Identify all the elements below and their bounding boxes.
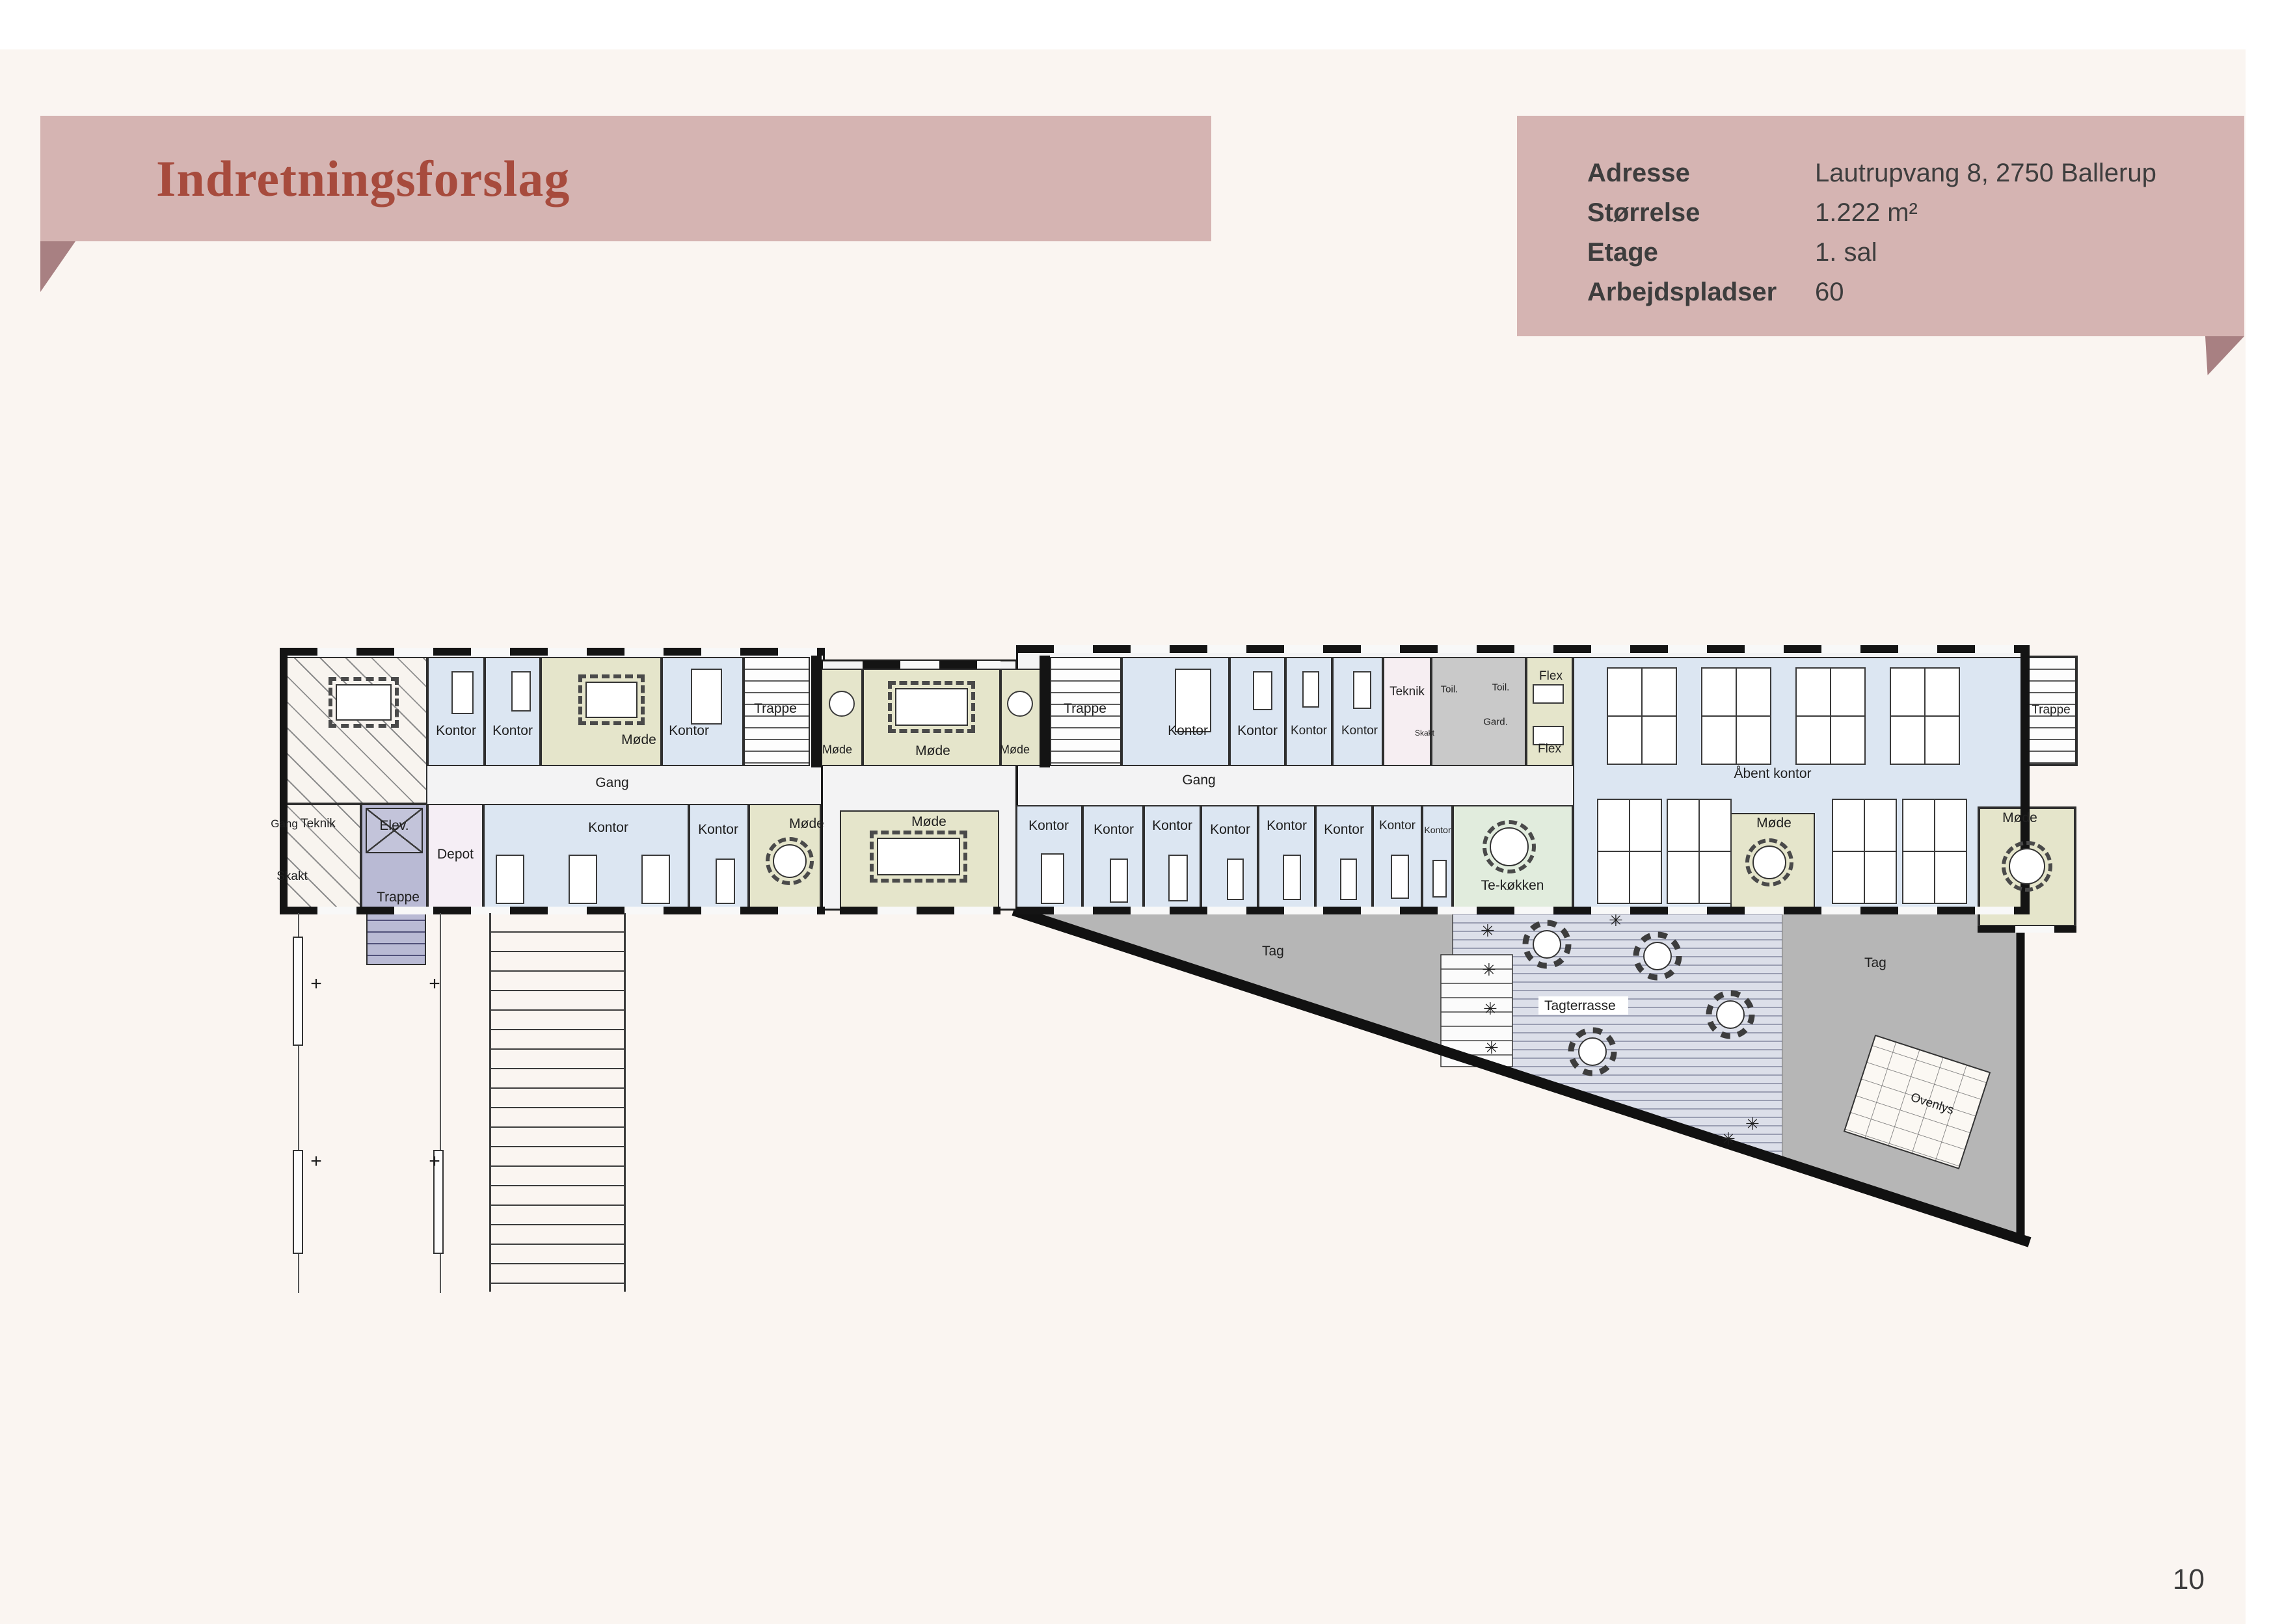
furniture-cluster <box>1597 799 1662 904</box>
furniture-desk <box>1168 855 1188 901</box>
window-wall <box>863 661 1000 669</box>
furniture-desk <box>1391 855 1409 899</box>
room-label: Kontor <box>492 723 533 739</box>
window-wall <box>1016 907 2026 914</box>
furniture-desk <box>1110 859 1128 903</box>
window-wall <box>840 907 1000 914</box>
furniture-rtable <box>773 844 807 878</box>
room-label: Gard. <box>1483 717 1508 728</box>
furniture-desk <box>496 855 524 904</box>
furniture-rchair <box>829 691 855 717</box>
furniture-desk <box>1432 860 1447 898</box>
svg-text:✳: ✳ <box>1481 921 1495 940</box>
room-label: Kontor <box>1210 822 1250 838</box>
room-label: Kontor <box>1424 825 1451 835</box>
room-label: Toil. <box>1441 684 1458 695</box>
room-label: Møde <box>789 816 824 832</box>
furniture-rtable <box>2009 848 2045 885</box>
room-label: Trappe <box>2032 703 2071 717</box>
room-label: Kontor <box>669 723 709 739</box>
furniture-desk <box>1302 671 1319 708</box>
room-label: Depot <box>437 847 474 862</box>
furniture-desk <box>1041 853 1064 904</box>
furniture-desk <box>1340 859 1357 900</box>
room-label: Kontor <box>1291 724 1327 738</box>
furniture-cluster <box>1701 667 1771 765</box>
furniture-rtable <box>1490 827 1529 866</box>
furniture-table <box>877 838 960 875</box>
furniture-cluster <box>1667 799 1732 904</box>
room-trappe <box>366 908 426 965</box>
furniture-desk <box>569 855 597 904</box>
furniture-cluster <box>1607 667 1677 765</box>
window-wall <box>1978 926 2076 933</box>
room-label: Toil. <box>1492 682 1510 693</box>
room-label: Elev. <box>379 818 409 834</box>
furniture-desk <box>1283 855 1301 900</box>
room-label: + <box>310 1151 322 1173</box>
room-label: Kontor <box>1094 822 1134 838</box>
furniture-rtable <box>1752 845 1786 879</box>
roof-label-left: Tag <box>1262 944 1284 959</box>
furniture-cluster <box>1902 799 1967 904</box>
furniture-capsule <box>293 1150 303 1254</box>
room-label: Trappe <box>377 890 420 905</box>
room-existing-area <box>284 657 427 804</box>
svg-text:✳: ✳ <box>1721 1129 1736 1149</box>
room-label: Skakt <box>1415 728 1434 738</box>
room-label: Kontor <box>1168 723 1208 739</box>
furniture-desk <box>1253 671 1272 710</box>
furniture-desk <box>1227 859 1244 900</box>
room-label: Te-køkken <box>1481 878 1544 894</box>
room-label: Møde <box>911 814 946 830</box>
room-label: Gang <box>595 775 628 791</box>
room-label: Kontor <box>1237 723 1278 739</box>
room-label: Møde <box>1000 743 1030 757</box>
furniture-desk <box>691 669 722 725</box>
solid-wall <box>811 656 822 767</box>
furniture-desk <box>641 855 670 904</box>
terrace-label: Tagterrasse <box>1544 998 1616 1013</box>
furniture-rchair <box>1007 691 1033 717</box>
room-label: + <box>310 973 322 995</box>
room-label: Teknik <box>1389 685 1425 699</box>
room-label: Trappe <box>754 701 797 717</box>
furniture-table <box>895 688 968 726</box>
room-label: Flex <box>1539 669 1563 684</box>
room-label: Kontor <box>436 723 476 739</box>
room-label: Skakt <box>276 870 308 884</box>
room-label: Møde <box>822 743 852 757</box>
furniture-desk <box>1353 671 1371 709</box>
roof-terrace-drawing: ✳ ✳ ✳ ✳ ✳ ✳ ✳ Tag Tagterrasse Tag Ovenly… <box>1007 905 2087 1260</box>
furniture-table <box>585 682 638 718</box>
furniture-table <box>336 684 392 721</box>
roof-label-right: Tag <box>1864 955 1886 970</box>
room-label: Kontor <box>1028 818 1069 834</box>
room-label: + <box>429 973 440 995</box>
room-label: + <box>429 1151 440 1173</box>
furniture-cluster <box>1795 667 1866 765</box>
svg-text:✳: ✳ <box>1483 999 1497 1018</box>
room-toiletter <box>1431 657 1526 766</box>
room-label: Gang <box>271 818 298 831</box>
room-label: Teknik <box>301 817 336 831</box>
room-label: Trappe <box>1064 701 1107 717</box>
furniture-capsule <box>293 937 303 1046</box>
svg-text:✳: ✳ <box>1484 1038 1499 1058</box>
room-label: Kontor <box>698 822 738 838</box>
room-label: Kontor <box>1267 818 1307 834</box>
furniture-desk <box>451 671 474 714</box>
room-label: Møde <box>2002 810 2037 826</box>
room-label: Kontor <box>1379 819 1416 833</box>
room-label: Kontor <box>588 820 628 836</box>
window-wall <box>1016 645 2028 653</box>
svg-text:✳: ✳ <box>1745 1114 1760 1134</box>
svg-text:✳: ✳ <box>1482 960 1496 979</box>
furniture-cluster <box>1890 667 1960 765</box>
room-label: Kontor <box>1324 822 1364 838</box>
room-label: Møde <box>1756 816 1792 831</box>
room-label: Kontor <box>1341 724 1378 738</box>
room-label: Møde <box>915 743 950 759</box>
furniture-ladder <box>489 913 626 1292</box>
room-label: Åbent kontor <box>1734 766 1811 782</box>
room-teknik <box>1383 657 1431 766</box>
room-label: Flex <box>1538 742 1561 756</box>
furniture-cluster <box>1832 799 1897 904</box>
room-label: Gang <box>1182 773 1215 788</box>
furniture-desk <box>716 859 735 904</box>
room-label: Kontor <box>1152 818 1192 834</box>
furniture-desk <box>1533 684 1564 704</box>
solid-wall <box>1040 656 1050 767</box>
furniture-desk <box>511 671 531 712</box>
floor-plan: ✳ ✳ ✳ ✳ ✳ ✳ ✳ Tag Tagterrasse Tag Ovenly… <box>0 0 2282 1624</box>
window-wall <box>280 648 825 656</box>
room-label: Møde <box>621 732 656 748</box>
page-number: 10 <box>2173 1564 2205 1596</box>
